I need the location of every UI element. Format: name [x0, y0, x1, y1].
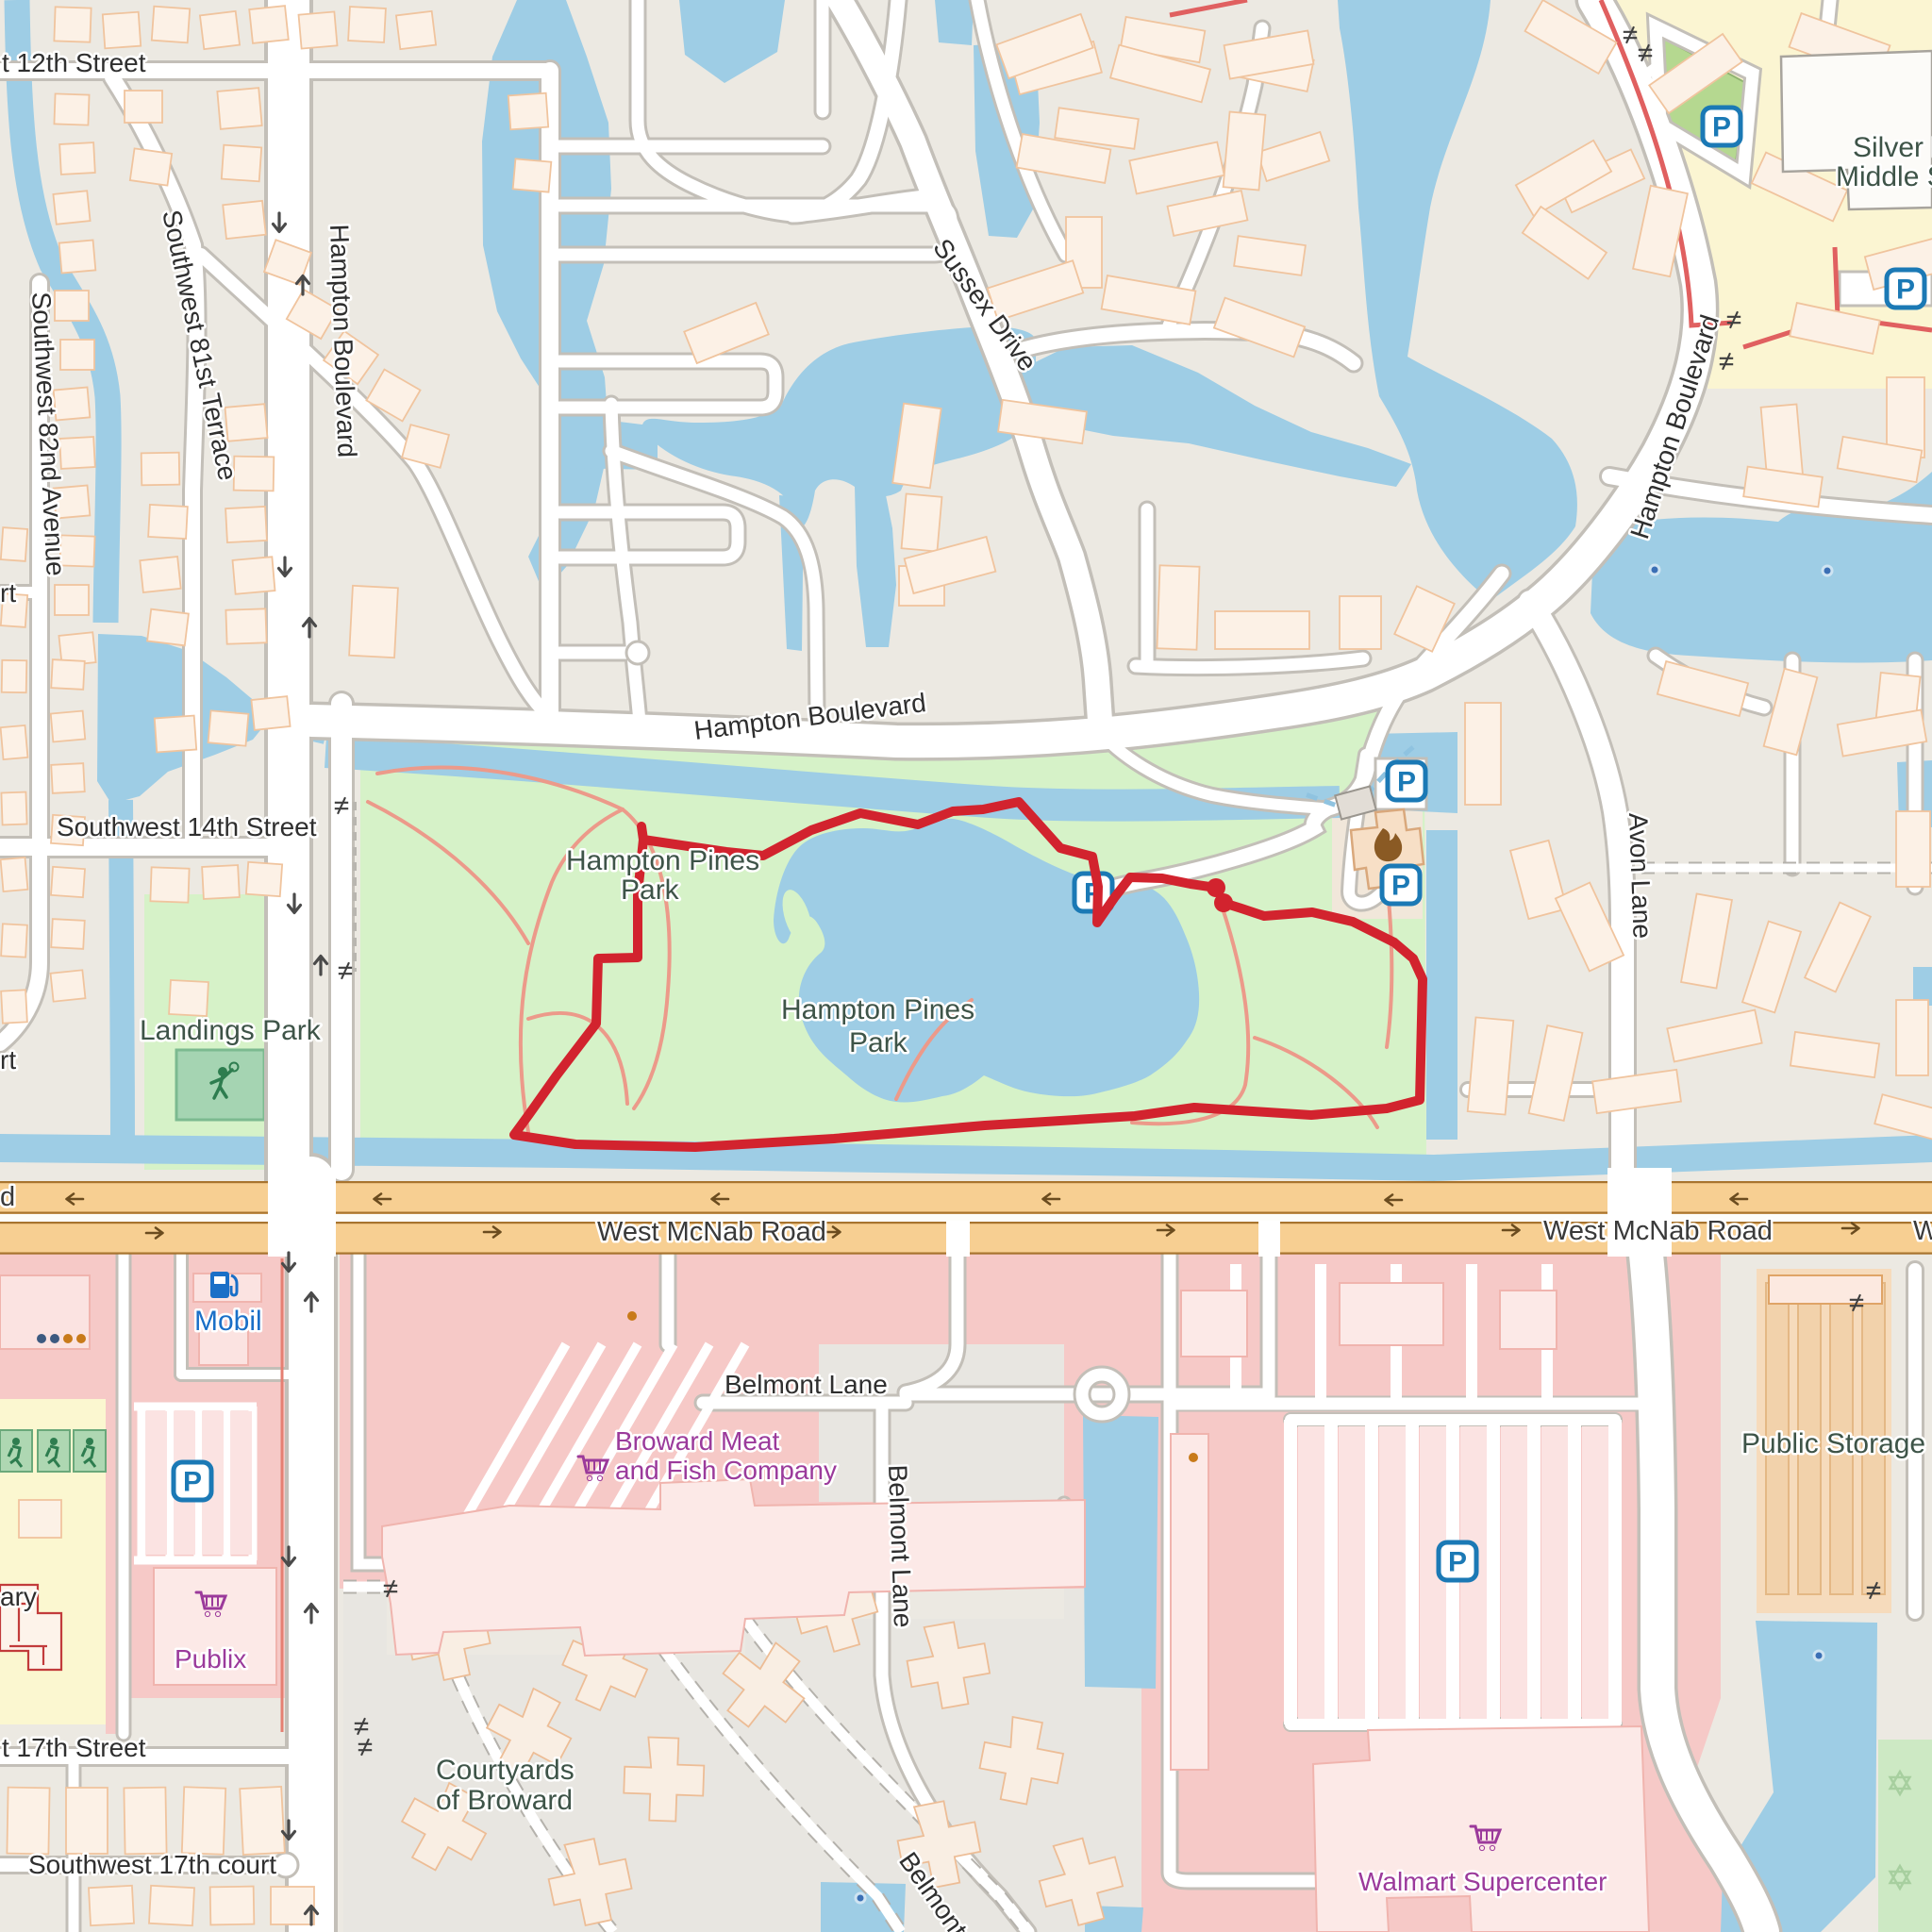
svg-text:rt: rt: [0, 1045, 16, 1074]
svg-text:Landings Park: Landings Park: [140, 1015, 322, 1046]
svg-text:Southwest 14th Street: Southwest 14th Street: [57, 812, 317, 841]
svg-text:of Broward: of Broward: [436, 1785, 573, 1816]
svg-text:Public Storage: Public Storage: [1741, 1428, 1925, 1459]
svg-text:t 12th Street: t 12th Street: [2, 48, 146, 77]
svg-text:Belmont Lane: Belmont Lane: [883, 1464, 918, 1628]
svg-text:Park: Park: [621, 874, 680, 906]
svg-text:Hampton Pines: Hampton Pines: [566, 845, 759, 876]
svg-text:Mobil: Mobil: [194, 1306, 262, 1337]
svg-text:West McNab Road: West McNab Road: [597, 1217, 826, 1247]
svg-text:West McNab Road: West McNab Road: [1543, 1216, 1773, 1246]
svg-text:Avon Lane: Avon Lane: [1624, 812, 1657, 939]
svg-text:Middle S: Middle S: [1836, 161, 1932, 192]
svg-text:W: W: [1913, 1216, 1932, 1246]
svg-text:Belmont Lane: Belmont Lane: [724, 1370, 888, 1399]
svg-text:Broward Meat: Broward Meat: [615, 1426, 780, 1456]
svg-text:Park: Park: [849, 1027, 908, 1058]
svg-text:ary: ary: [0, 1582, 37, 1611]
svg-text:Courtyards: Courtyards: [436, 1755, 575, 1786]
svg-text:d: d: [0, 1182, 15, 1212]
svg-text:Hampton Pines: Hampton Pines: [781, 994, 974, 1025]
svg-text:Southwest 17th court: Southwest 17th court: [28, 1850, 276, 1879]
svg-text:t 17th Street: t 17th Street: [2, 1733, 146, 1762]
svg-text:Publix: Publix: [175, 1644, 246, 1674]
svg-text:Walmart Supercenter: Walmart Supercenter: [1358, 1867, 1607, 1896]
svg-text:rt: rt: [0, 578, 16, 608]
svg-text:Silver L: Silver L: [1853, 132, 1932, 163]
svg-text:and Fish Company: and Fish Company: [615, 1456, 837, 1485]
